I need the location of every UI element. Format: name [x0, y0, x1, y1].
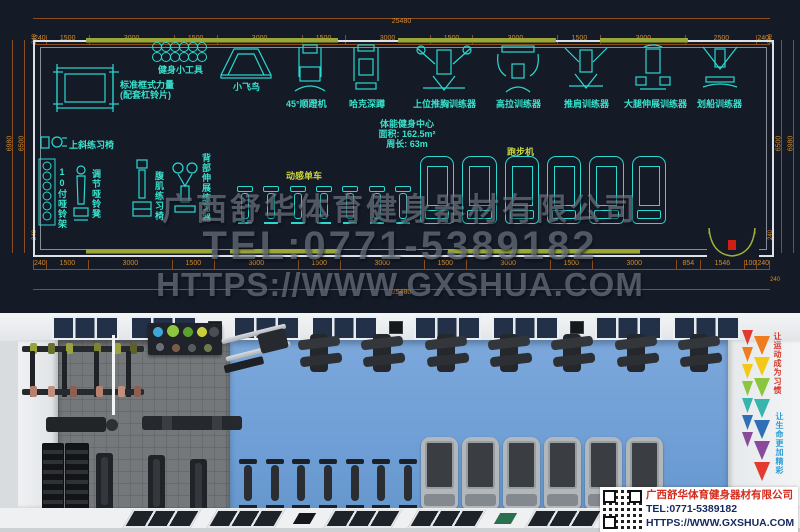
- barbell-plate: [114, 343, 121, 354]
- banner-triangles-right: [754, 336, 770, 481]
- rn-machine: [676, 333, 722, 375]
- bottom-window-row: [128, 510, 682, 526]
- dim-label: 100: [745, 260, 758, 269]
- bench-render: [96, 453, 113, 511]
- rn-bike: [318, 459, 338, 511]
- label-spinbike: 动感单车: [286, 171, 322, 181]
- label-hack: 哈克深蹲: [349, 99, 385, 109]
- barbell-plate: [48, 386, 55, 397]
- dim-label: 240: [757, 260, 770, 269]
- tri: [742, 330, 753, 345]
- room-info-perimeter: 周长: 63m: [352, 139, 462, 149]
- vdim-right-inner: 6500: [775, 136, 782, 152]
- tri: [754, 441, 770, 460]
- dim-label: 240: [33, 260, 47, 269]
- rn-machine: [549, 333, 595, 375]
- label-rack-line1: 标准框式力量: [120, 80, 174, 90]
- bottom-window: [324, 509, 403, 528]
- leg-extension-glyph: [632, 43, 674, 93]
- legpress45-glyph: [291, 43, 329, 93]
- watermark-company: 广西舒华体育健身器材有限公司: [162, 184, 638, 229]
- barbell-rack-lower: [22, 389, 144, 395]
- dim-total-top: 25480: [33, 10, 770, 19]
- dumbbell-rack-render: [65, 443, 89, 515]
- rn-bike: [291, 459, 311, 511]
- hack-squat-glyph: [348, 43, 384, 93]
- dim-label: 1500: [47, 260, 89, 269]
- dim-total-top-value: 25480: [392, 18, 411, 25]
- tri: [742, 347, 753, 362]
- rn-bike: [345, 459, 365, 511]
- watermark-tel: TEL:0771-5389182: [203, 224, 598, 269]
- skylight: [52, 316, 119, 340]
- barbell-plate: [30, 386, 37, 397]
- room-info-title: 体能健身中心: [352, 119, 462, 129]
- company-info-card: 广西舒华体育健身器材有限公司 TEL:0771-5389182 HTTPS://…: [600, 487, 798, 532]
- strength-machines-row: [296, 333, 722, 375]
- tri: [754, 420, 770, 439]
- dumbbell-rack-glyph: [38, 158, 56, 226]
- banner-text-bottom: 让生命更加精彩: [774, 412, 785, 475]
- small-tools-glyph: [151, 41, 209, 63]
- chest-press-glyph: [413, 42, 475, 94]
- tri: [754, 462, 770, 481]
- label-rowing: 划船训练器: [697, 99, 742, 109]
- wall-banner: 让运动成为习惯 让生命更加精彩: [742, 330, 782, 482]
- rn-tread: [503, 437, 540, 509]
- rn-machine: [359, 333, 405, 375]
- window-strip: [600, 38, 688, 42]
- room-info: 体能健身中心 面积: 162.5m² 周长: 63m: [352, 119, 462, 149]
- ball-storage-rack: [148, 323, 222, 355]
- label-treadmill: 跑步机: [507, 147, 534, 157]
- label-rack: 标准框式力量 (配套杠铃片): [120, 80, 174, 100]
- company-info-text: 广西舒华体育健身器材有限公司 TEL:0771-5389182 HTTPS://…: [646, 489, 796, 530]
- spin-bikes-render-row: [238, 459, 418, 511]
- vdim-left-outer: 6980: [6, 136, 13, 152]
- column: [112, 335, 115, 415]
- dumbbell-rack-render: [42, 443, 64, 515]
- tri: [742, 415, 753, 430]
- bottom-window: [408, 509, 487, 528]
- barbell-plate: [118, 386, 125, 397]
- label-chestpress: 上位推胸训练器: [413, 99, 476, 109]
- tri: [742, 381, 753, 396]
- label-adjbench: 调节哑铃凳: [91, 169, 101, 219]
- company-tel: TEL:0771-5389182: [646, 502, 796, 516]
- floor-poster: [494, 513, 518, 524]
- bottom-window: [206, 509, 285, 528]
- vdim-right-outer: 6980: [787, 136, 794, 152]
- barbell-plate: [96, 386, 103, 397]
- rn-machine: [613, 333, 659, 375]
- rn-bike: [371, 459, 391, 511]
- bottom-window: [525, 509, 604, 528]
- label-dbrack: 10付哑铃架: [57, 167, 67, 229]
- vdim-left-inner: 6500: [18, 136, 25, 152]
- ab-chair-glyph: [131, 158, 153, 222]
- tri: [754, 357, 770, 376]
- rowing-glyph: [697, 43, 743, 91]
- screenshot-root: 25480 2401500300015003000150030001500300…: [0, 0, 800, 532]
- qr-code: [603, 490, 642, 529]
- label-legpress45: 45°顺蹬机: [286, 99, 327, 109]
- tri: [742, 432, 753, 447]
- company-name: 广西舒华体育健身器材有限公司: [646, 489, 796, 502]
- dim-right-extra: 240: [770, 277, 780, 283]
- barbell-plate: [66, 343, 73, 354]
- lat-pulldown-glyph: [492, 44, 544, 94]
- rn-bike: [398, 459, 418, 511]
- rn-machine: [486, 333, 532, 375]
- door-glyph: [705, 226, 759, 260]
- cad-plan-panel: 25480 2401500300015003000150030001500300…: [0, 0, 800, 313]
- label-shoulderpress: 推肩训练器: [564, 99, 609, 109]
- label-rack-line2: (配套杠铃片): [120, 90, 174, 100]
- rn-tread: [462, 437, 499, 509]
- label-tools: 健身小工具: [158, 65, 203, 75]
- label-flybird: 小飞鸟: [233, 82, 260, 92]
- power-rack-glyph: [53, 62, 119, 114]
- barbell-plate: [130, 343, 137, 354]
- tri: [742, 364, 753, 379]
- banner-text-top: 让运动成为习惯: [772, 332, 783, 395]
- company-url: HTTPS://WWW.GXSHUA.COM: [646, 516, 796, 530]
- banner-triangles-left: [742, 330, 753, 447]
- floor-poster: [293, 513, 317, 524]
- bottom-window: [123, 509, 202, 528]
- incline-bench-glyph: [40, 132, 68, 152]
- barbell-plate: [70, 386, 77, 397]
- dim-label: 1546: [701, 260, 745, 269]
- rn-tread: [544, 437, 581, 509]
- tri: [754, 336, 770, 355]
- render-3d-panel: 让运动成为习惯 让生命更加精彩 广西舒华体育健身器材有限公司 TEL:0771-…: [0, 313, 800, 532]
- barbell-plate: [134, 386, 141, 397]
- window-strip: [86, 38, 338, 42]
- barbell-plate: [48, 343, 55, 354]
- shoulder-press-glyph: [561, 44, 611, 92]
- bench-render: [148, 455, 165, 513]
- watermark-url: HTTPS://WWW.GXSHUA.COM: [156, 266, 644, 304]
- room-info-area: 面积: 162.5m²: [352, 129, 462, 139]
- rn-bike: [238, 459, 258, 511]
- flat-bench: [46, 417, 106, 432]
- rn-machine: [423, 333, 469, 375]
- label-latpull: 高拉训练器: [496, 99, 541, 109]
- label-legext: 大腿伸展训练器: [624, 99, 687, 109]
- adjustable-bench-glyph: [72, 164, 90, 224]
- window-strip: [86, 249, 212, 253]
- rn-bike: [265, 459, 285, 511]
- rn-machine: [296, 333, 342, 375]
- fly-bird-glyph: [219, 45, 273, 79]
- tri: [754, 378, 770, 397]
- tri: [754, 399, 770, 418]
- rn-tread: [421, 437, 458, 509]
- label-incline: 上斜练习椅: [69, 140, 114, 150]
- dim-label: 854: [677, 260, 702, 269]
- low-machine: [142, 416, 242, 430]
- tri: [742, 398, 753, 413]
